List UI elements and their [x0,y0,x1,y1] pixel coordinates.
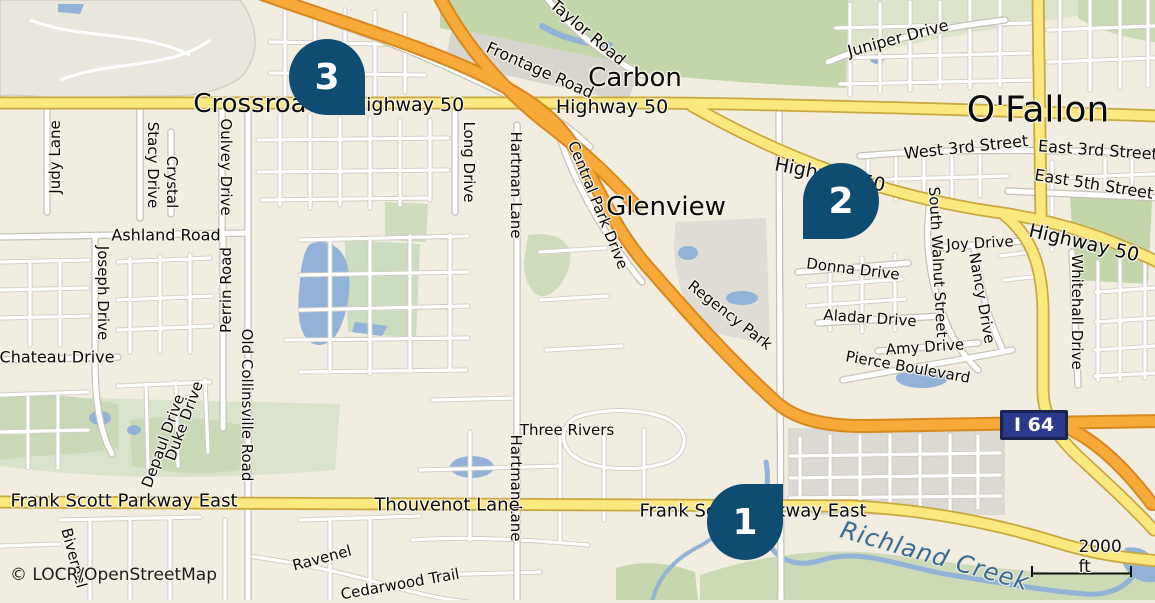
road-label-perrin-road: Perrin Road [217,247,235,333]
map-marker-1-label: 1 [732,502,757,543]
road-label-long-drive: Long Drive [460,121,478,202]
map[interactable]: Crossroads Carbon Glenview O'Fallon High… [0,0,1155,600]
map-marker-2[interactable]: 2 [803,163,879,239]
road-label-whitehall-drive: Whitehall Drive [1068,254,1086,369]
road-label-three-rivers: Three Rivers [520,421,614,439]
road-label-frank-scott-parkway-east: Frank Scott Parkway East [10,491,237,512]
map-marker-3[interactable]: 3 [289,39,365,115]
road-label-oulvey-drive: Oulvey Drive [217,118,235,215]
town-label-carbon: Carbon [588,63,682,93]
town-label-ofallon: O'Fallon [967,90,1110,131]
interstate-64-shield: I 64 [1000,410,1068,440]
road-label-ashland-road: Ashland Road [111,226,220,245]
interstate-64-shield-label: I 64 [1014,414,1054,436]
road-label-chateau-drive: Chateau Drive [0,348,114,367]
road-label-hartman-lane: Hartman Lane [507,132,525,239]
map-attribution: © LOCR/OpenStreetMap [10,565,217,585]
road-label-joy-drive: Joy Drive [946,232,1014,253]
map-marker-3-label: 3 [314,57,339,98]
map-marker-1[interactable]: 1 [707,484,783,560]
road-label-thouvenot-lane: Thouvenot Lane [374,495,519,516]
road-label-crystal: Crystal [163,156,181,209]
road-label-stacy-drive: Stacy Drive [144,122,162,208]
road-label-old-collinsville-road: Old Collinsville Road [238,329,256,482]
road-label-highway-50: Highway 50 [556,96,668,118]
town-label-glenview: Glenview [606,192,726,222]
map-marker-2-label: 2 [828,181,853,222]
road-label-hartman-lane: Hartman Lane [507,435,525,542]
scale-label: 2000 ft [1079,537,1130,577]
road-label-joseph-drive: Joseph Drive [94,246,112,340]
road-label-highway-50: Highway 50 [352,94,464,116]
road-label-judy-lane: Judy Lane [46,120,64,193]
